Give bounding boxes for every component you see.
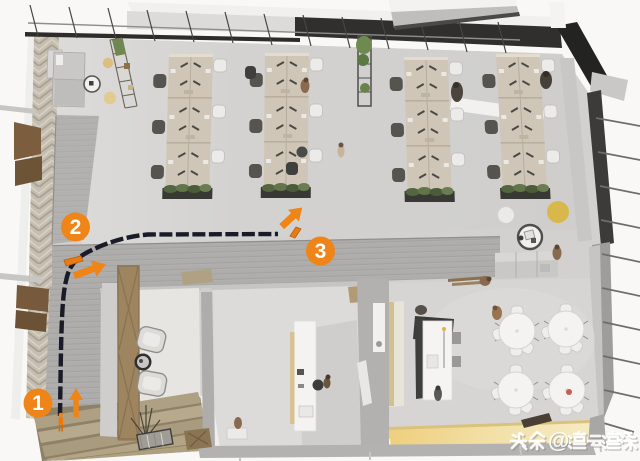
- svg-text:1: 1: [32, 392, 44, 415]
- svg-text:3: 3: [315, 240, 327, 263]
- svg-text:@: @: [548, 428, 569, 453]
- svg-text:2: 2: [70, 216, 82, 239]
